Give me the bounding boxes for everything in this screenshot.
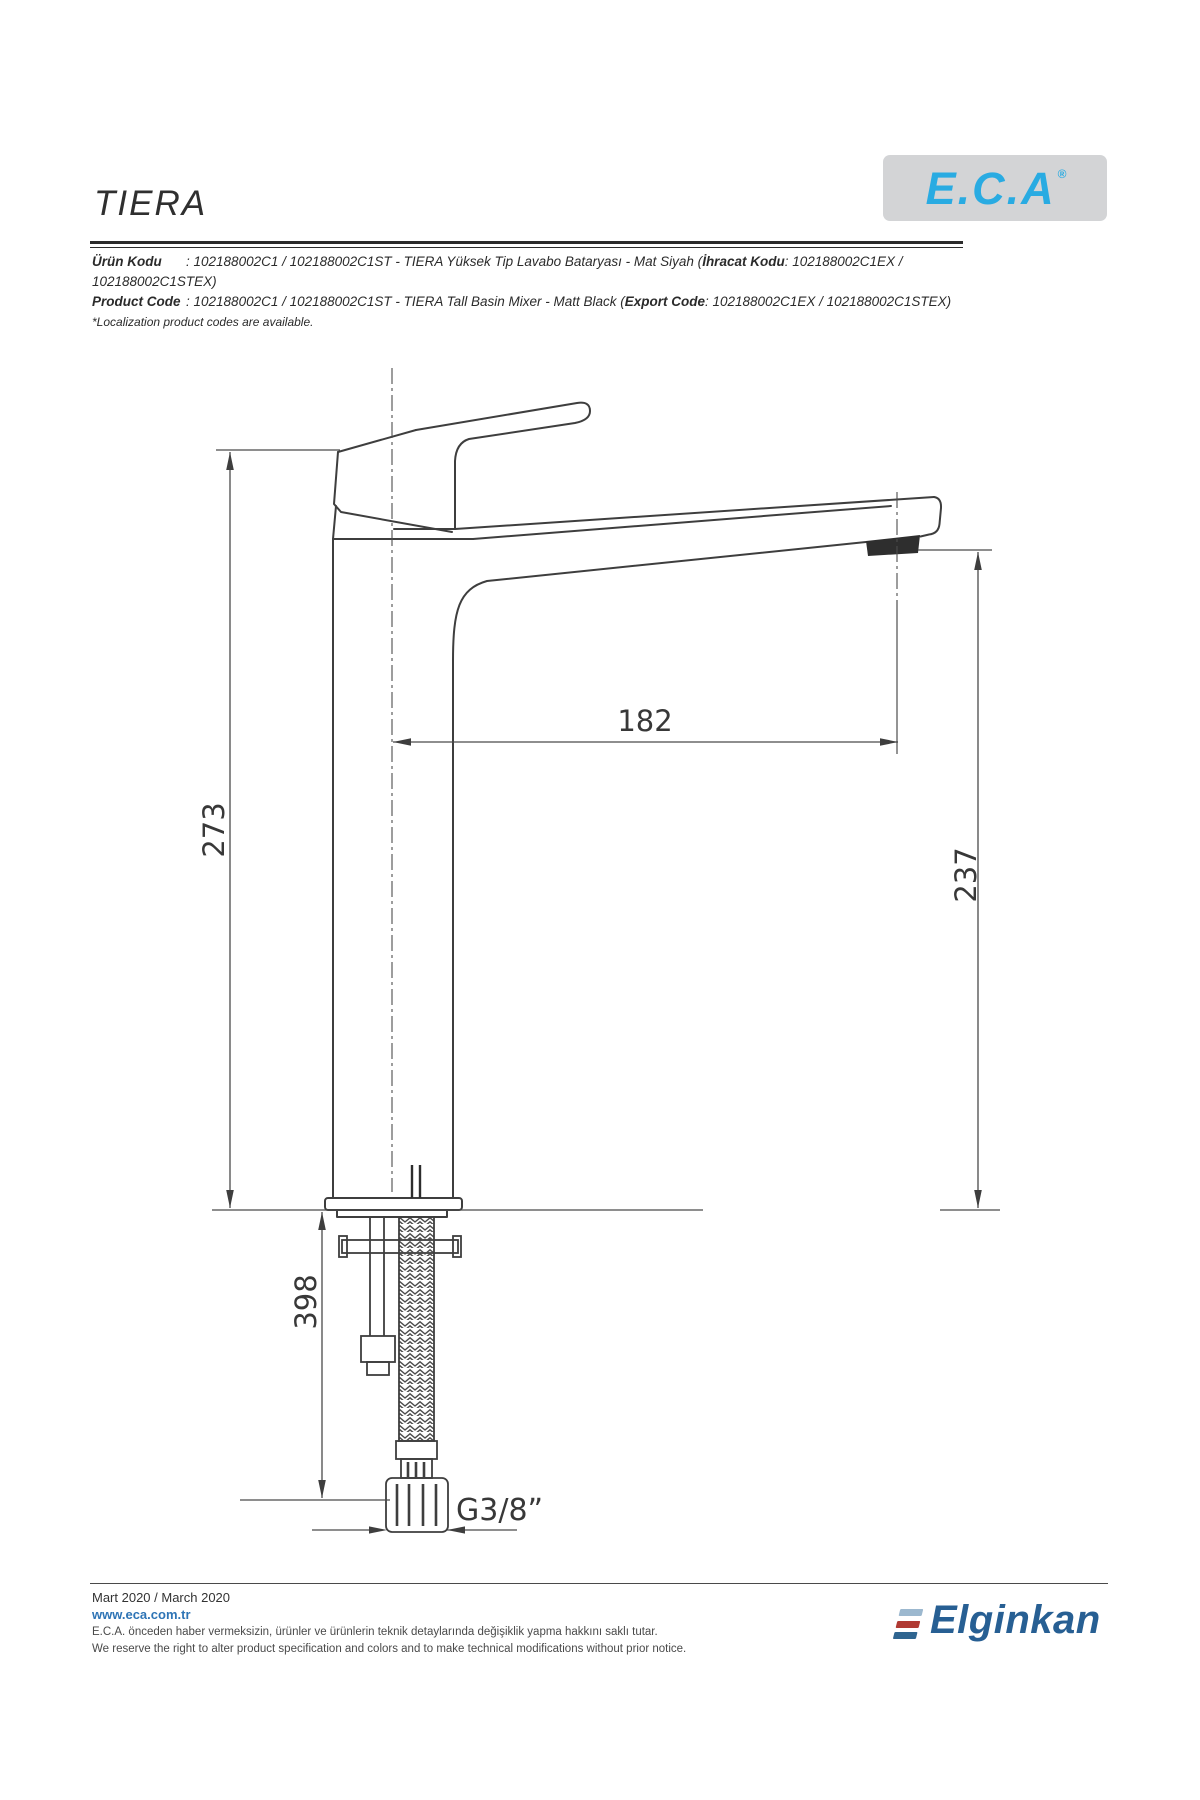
technical-drawing: 182 273 237 398 G3/8”: [0, 0, 1200, 1800]
handle-lever: [338, 430, 416, 452]
base-plate: [325, 1198, 462, 1210]
faucet-outline: [325, 403, 941, 1217]
elginkan-logo: Elginkan: [896, 1596, 1101, 1644]
connection-nut: [386, 1478, 448, 1532]
hose-ferrule: [396, 1441, 437, 1459]
base-gasket: [337, 1210, 447, 1217]
dimension-lines: [212, 450, 1000, 1530]
dim-total-height-label: 273: [197, 802, 231, 857]
elginkan-bars-icon: [892, 1609, 924, 1644]
dimension-arrowheads: [226, 452, 982, 1534]
spout-tip: [921, 497, 942, 537]
dim-spout-height-label: 237: [949, 847, 983, 902]
spec-sheet-page: TIERA E.C.A ® Ürün Kodu: 102188002C1 / 1…: [0, 0, 1200, 1800]
mounting-assembly: [339, 1217, 461, 1532]
dim-spout-reach-label: 182: [617, 704, 672, 738]
dim-under-deck-label: 398: [289, 1274, 323, 1329]
mounting-nut: [361, 1336, 395, 1362]
aerator: [866, 535, 920, 556]
flexible-hose: [399, 1217, 434, 1441]
spout-top-edge: [455, 497, 934, 529]
footer-note-en: We reserve the right to alter product sp…: [92, 1643, 686, 1655]
footer-website-link[interactable]: www.eca.com.tr: [92, 1607, 191, 1622]
footer-note-tr: E.C.A. önceden haber vermeksizin, ürünle…: [92, 1626, 658, 1638]
elginkan-logo-text: Elginkan: [930, 1596, 1101, 1644]
footer-date: Mart 2020 / March 2020: [92, 1590, 230, 1605]
dim-connection-label: G3/8”: [456, 1493, 543, 1528]
footer-divider: [90, 1583, 1108, 1584]
mounting-stud: [370, 1217, 384, 1336]
centerlines: [392, 368, 897, 1192]
spout-underside: [453, 542, 866, 661]
